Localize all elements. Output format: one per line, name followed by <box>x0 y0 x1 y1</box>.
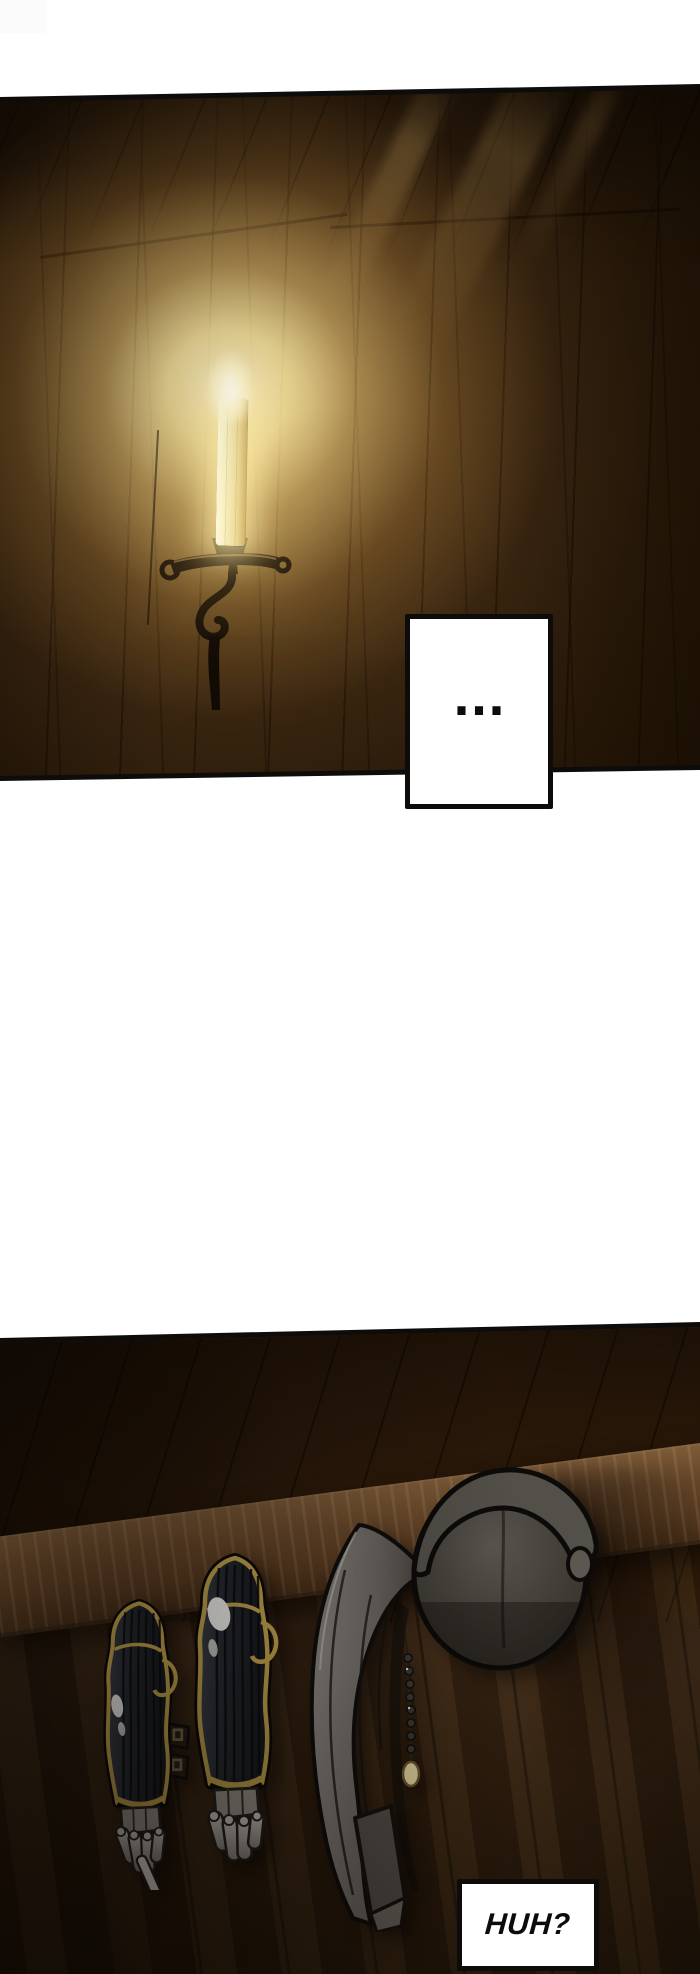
corner-artifact <box>0 0 46 33</box>
comic-page: ... <box>0 0 700 1974</box>
speech-bubble-huh: HUH? <box>457 1879 599 1971</box>
speech-bubble-text: ... <box>453 676 505 722</box>
speech-bubble-text: HUH? <box>484 1908 572 1942</box>
speech-bubble-ellipsis: ... <box>405 614 553 809</box>
